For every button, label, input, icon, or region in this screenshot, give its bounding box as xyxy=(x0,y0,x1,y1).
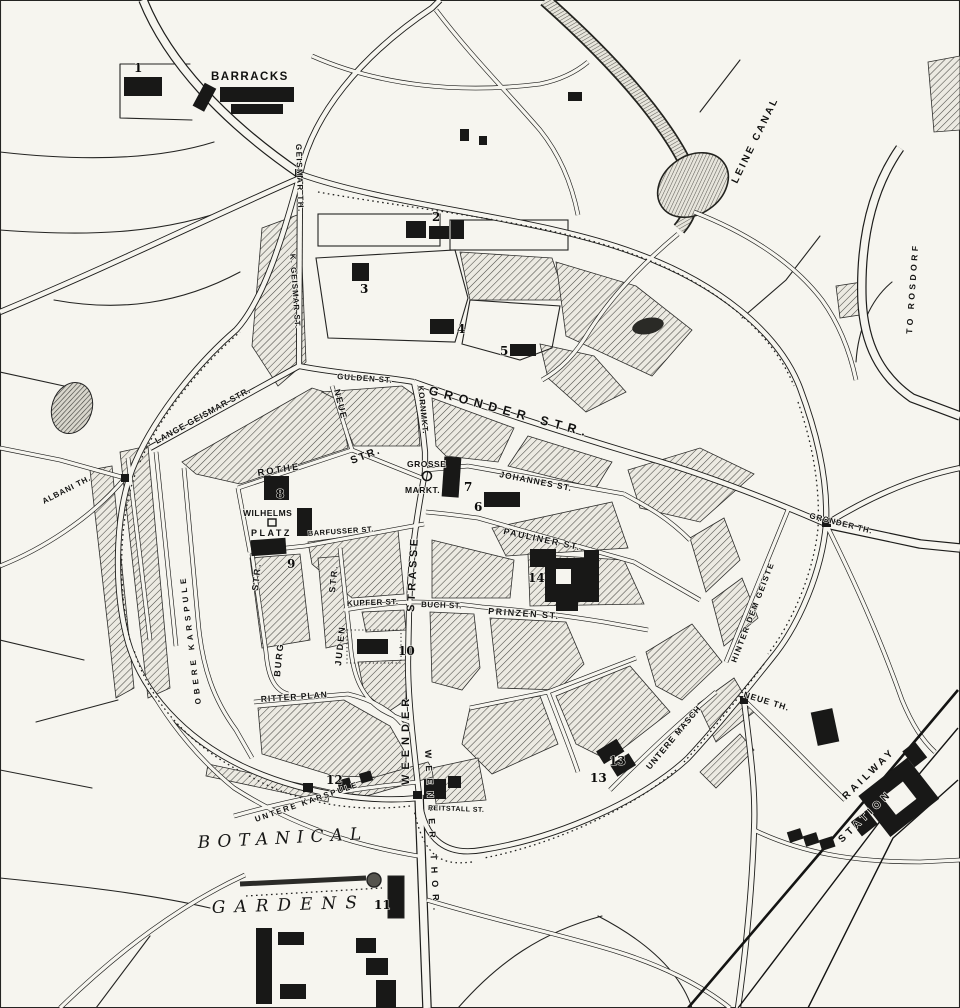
marker-5: 5 xyxy=(500,344,508,358)
marker-9: 9 xyxy=(287,557,295,571)
label-markt: MARKT. xyxy=(405,485,440,495)
marker-11: 11 xyxy=(374,898,391,912)
building-3 xyxy=(352,263,369,281)
label-wilhelms: WILHELMS xyxy=(243,508,292,518)
marker-6: 6 xyxy=(474,500,482,514)
building-2 xyxy=(406,221,426,238)
barracks-building xyxy=(220,87,294,102)
marker-4: 4 xyxy=(457,322,465,336)
marker-3: 3 xyxy=(360,282,368,296)
marker-13a: 13 xyxy=(590,771,607,785)
marker-10: 10 xyxy=(398,644,415,658)
building-4 xyxy=(430,319,454,334)
marker-12: 12 xyxy=(326,773,343,787)
building-6 xyxy=(484,492,520,507)
label-kupfer-st: KUPFER ST. xyxy=(347,597,399,608)
label-barracks: BARRACKS xyxy=(211,71,289,83)
marker-7: 7 xyxy=(464,480,472,494)
label-weender: WEENDER xyxy=(400,694,412,785)
building-1 xyxy=(124,77,162,96)
marker-13b: 13 xyxy=(609,754,626,768)
building-9 xyxy=(250,538,286,556)
gate-weender xyxy=(413,791,422,799)
label-buch-st: BUCH ST. xyxy=(421,600,462,610)
marker-8: 8 xyxy=(276,487,284,501)
garden-basin xyxy=(367,873,381,887)
building-10 xyxy=(357,639,388,654)
marker-14: 14 xyxy=(528,571,545,585)
building-12 xyxy=(303,783,313,792)
city-map: BARRACKS LEINE CANAL TO ROSDORF GEISMAR … xyxy=(0,0,960,1008)
label-platz: PLATZ xyxy=(251,528,292,538)
building-5 xyxy=(510,344,536,356)
label-grosse: GROSSE xyxy=(407,459,446,469)
marker-2: 2 xyxy=(432,210,440,224)
gate-albani xyxy=(121,474,129,482)
marker-1: 1 xyxy=(134,61,142,75)
